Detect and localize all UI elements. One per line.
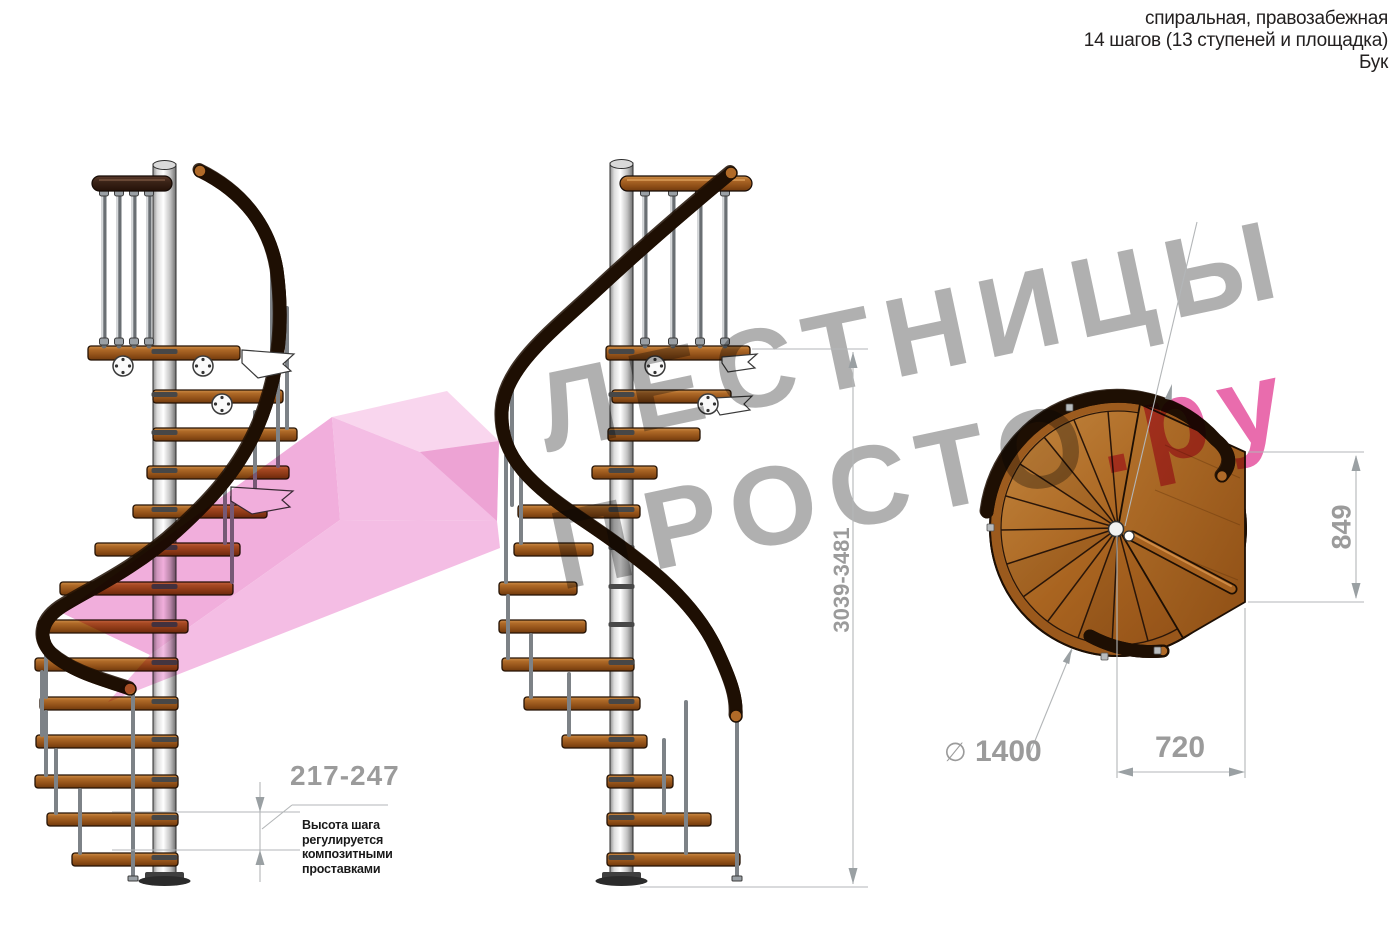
total-height-label: 3039-3481 xyxy=(829,527,855,632)
diameter-symbol: ∅ xyxy=(944,737,967,767)
step-height-label: 217-247 xyxy=(290,760,400,792)
diameter-label: ∅ 1400 xyxy=(944,735,1042,769)
handrail-leader xyxy=(1125,222,1197,526)
diameter-value: 1400 xyxy=(975,735,1042,768)
exit-width-label: 720 xyxy=(1155,731,1205,765)
landing-side-label: 849 xyxy=(1327,504,1358,549)
step-height-note: Высота шага регулируется композитными пр… xyxy=(302,818,393,876)
dimension-lines xyxy=(0,0,1400,941)
